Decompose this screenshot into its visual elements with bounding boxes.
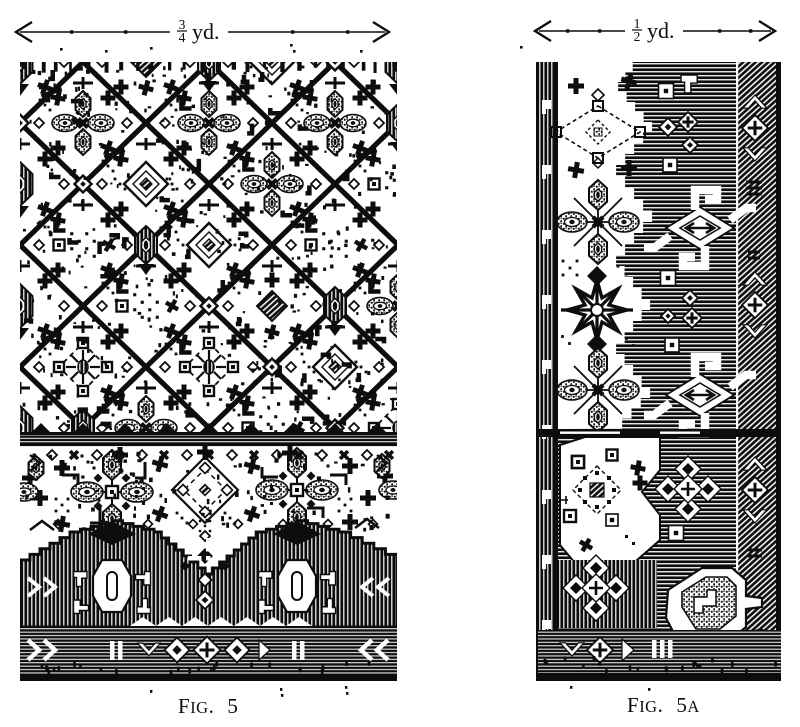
svg-text:FIG.5: FIG.5 [178,694,238,718]
svg-text:2: 2 [634,29,641,44]
svg-text:yd.: yd. [192,19,220,44]
svg-text:yd.: yd. [647,18,675,43]
svg-text:4: 4 [179,30,186,45]
